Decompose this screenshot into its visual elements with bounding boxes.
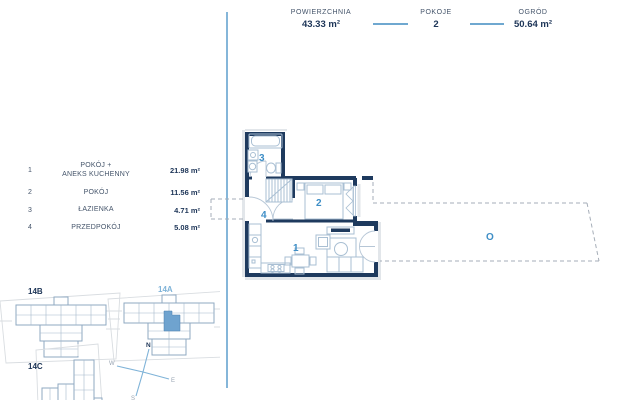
sink (248, 161, 257, 172)
room-label-3: 3 (259, 153, 265, 164)
stat-garden-label: OGRÓD (514, 9, 552, 16)
apartment-plan-page: POWIERZCHNIA 43.33 m² POKOJE 2 OGRÓD 50.… (0, 0, 620, 400)
tv-sideboard (327, 227, 354, 234)
site-plan-14a[interactable]: 14A (108, 285, 220, 361)
toilet (267, 163, 282, 173)
bathtub (249, 134, 282, 148)
room-list-row: 4 PRZEDPOKÓJ 5.08 m² (28, 223, 200, 232)
room-name: PRZEDPOKÓJ (42, 223, 150, 232)
sofa (327, 257, 363, 272)
room-list-row: 3 ŁAZIENKA 4.71 m² (28, 205, 200, 214)
compass-e-label: E (171, 378, 175, 384)
compass-s-label: S (131, 396, 135, 400)
stat-separator (470, 23, 504, 25)
room-number: 4 (28, 224, 42, 231)
bed (297, 183, 351, 219)
armchair (316, 235, 330, 249)
floor-plan: O (200, 120, 610, 290)
room-area: 11.56 m² (150, 188, 200, 197)
room-number: 3 (28, 207, 42, 214)
wardrobe-hatch (266, 179, 292, 202)
room-list: 1 POKÓJ + ANEKS KUCHENNY 21.98 m² 2 POKÓ… (28, 161, 200, 232)
room-name: ŁAZIENKA (42, 205, 150, 214)
washing-machine (248, 150, 258, 160)
stat-area-value: 43.33 m² (291, 19, 351, 30)
room-number: 1 (28, 167, 42, 174)
stat-separator (373, 23, 408, 25)
room-label-2: 2 (316, 198, 322, 209)
room-name: POKÓJ (42, 188, 150, 197)
room-list-row: 1 POKÓJ + ANEKS KUCHENNY 21.98 m² (28, 161, 200, 180)
compass-n-label: N (146, 342, 151, 349)
site-label-14a[interactable]: 14A (158, 285, 173, 294)
kitchen-counter (249, 224, 261, 268)
stat-garden-value: 50.64 m² (514, 19, 552, 30)
room-number: 2 (28, 189, 42, 196)
site-plan-14b[interactable]: 14B (0, 287, 122, 363)
room-area: 5.08 m² (150, 223, 200, 232)
stat-area-label: POWIERZCHNIA (291, 9, 351, 16)
coffee-table (335, 243, 348, 256)
compass-w-label: W (109, 361, 115, 367)
room-area: 4.71 m² (150, 206, 200, 215)
stat-rooms: POKOJE 2 (420, 9, 451, 30)
garden-label: O (486, 232, 494, 243)
room-list-row: 2 POKÓJ 11.56 m² (28, 188, 200, 197)
room-label-4: 4 (261, 210, 267, 221)
site-label-14b[interactable]: 14B (28, 287, 43, 296)
stat-area: POWIERZCHNIA 43.33 m² (291, 9, 351, 30)
stat-rooms-label: POKOJE (420, 9, 451, 16)
site-plan: 14B 14A 14C N W E S (0, 270, 220, 400)
room-area: 21.98 m² (150, 166, 200, 175)
room-name: POKÓJ + ANEKS KUCHENNY (42, 161, 150, 180)
room-label-1: 1 (293, 243, 299, 254)
stat-garden: OGRÓD 50.64 m² (514, 9, 552, 30)
stat-rooms-value: 2 (420, 19, 451, 30)
site-label-14c[interactable]: 14C (28, 362, 43, 371)
